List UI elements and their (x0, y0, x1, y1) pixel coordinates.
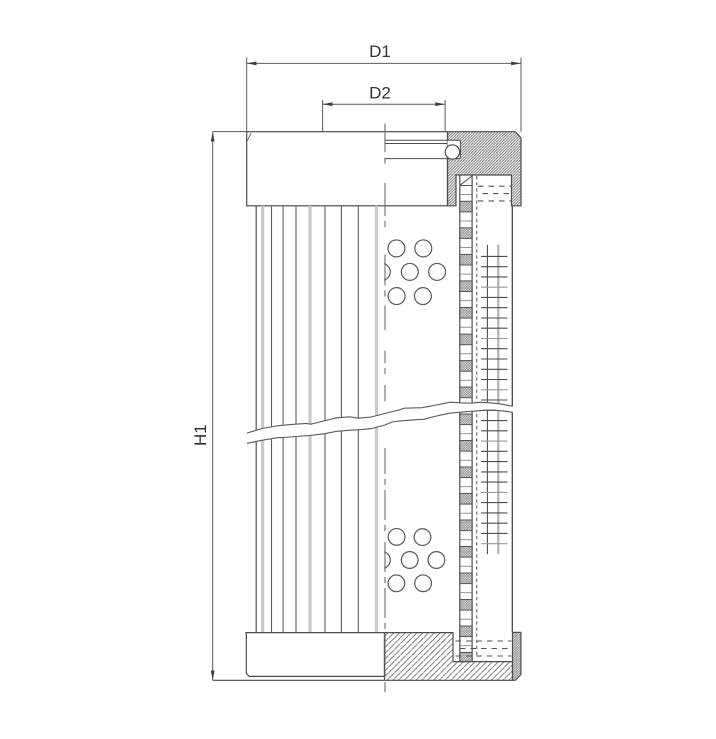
svg-text:H1: H1 (191, 424, 210, 446)
svg-text:D1: D1 (369, 42, 391, 61)
svg-text:D2: D2 (369, 83, 391, 102)
